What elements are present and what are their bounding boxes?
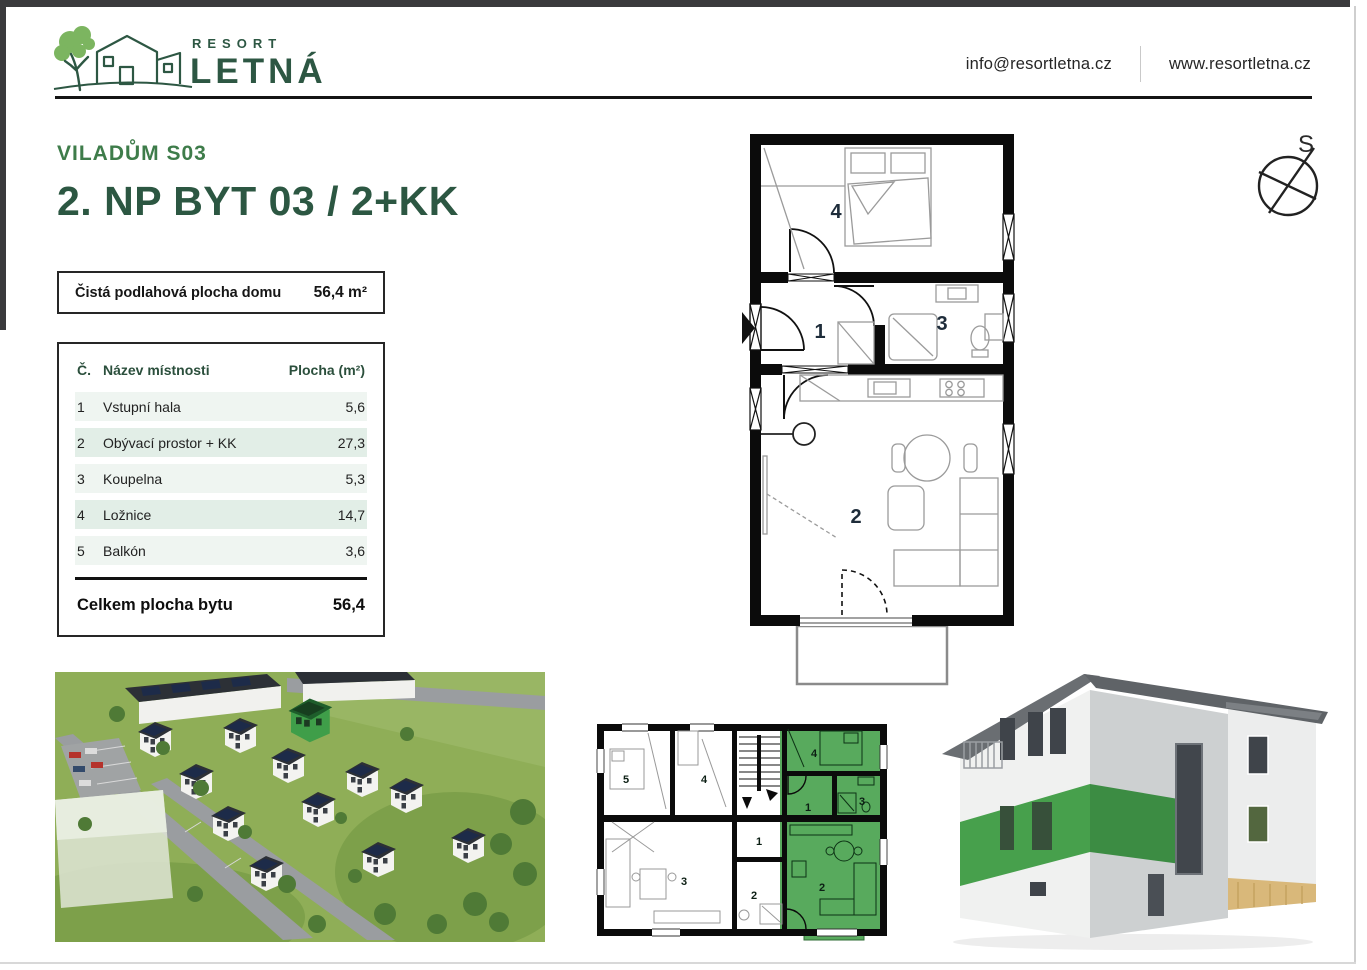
ceiling-lamp-icon [761,423,815,445]
col-area: Plocha (m²) [289,362,365,378]
logo-text-letna: LETNÁ [190,51,327,91]
col-number: Č. [77,362,103,378]
row-number: 3 [77,471,103,487]
logo-tree-icon [54,26,95,90]
ov-label-4L: 4 [701,774,708,786]
aerial-site-render [55,672,545,942]
ov-label-3G: 3 [859,796,865,808]
page-title: 2. NP BYT 03 / 2+KK [57,178,459,225]
row-number: 1 [77,399,103,415]
row-area: 5,3 [346,471,365,487]
table-total-row: Celkem plocha bytu 56,4 [75,577,367,617]
room-label-bathroom: 3 [936,313,947,335]
ov-label-5L: 5 [623,774,629,786]
page-right-edge [1354,6,1356,964]
ov-label-1G: 1 [805,802,811,814]
interior-doors [782,229,885,419]
window-top-edge [0,0,1350,7]
table-row: 3 Koupelna 5,3 [75,464,367,493]
row-name: Koupelna [103,471,346,487]
main-floorplan: 4 1 3 2 [742,126,1022,698]
contact-divider [1140,46,1141,82]
plan-walls [750,134,1014,626]
total-label: Celkem plocha bytu [77,596,233,615]
resort-letna-logo: RESORT LETNÁ [52,12,332,98]
sports-hall [55,790,173,908]
floorplan-overview: 5 4 3 1 2 4 1 3 2 [592,719,892,941]
rooms-table: Č. Název místnosti Plocha (m²) 1 Vstupní… [57,342,385,637]
total-value: 56,4 [333,596,365,615]
entrance-door [748,304,804,350]
row-area: 14,7 [338,507,365,523]
ov-label-2G: 2 [819,882,825,894]
rooms-table-header: Č. Název místnosti Plocha (m²) [75,358,367,392]
logo-text-resort: RESORT [192,36,282,51]
table-row: 5 Balkón 3,6 [75,536,367,565]
project-subtitle: VILADŮM S03 [57,142,459,166]
row-name: Balkón [103,543,346,559]
table-row: 1 Vstupní hala 5,6 [75,392,367,421]
row-number: 2 [77,435,103,451]
row-area: 5,6 [346,399,365,415]
page-bottom-edge [0,962,1356,964]
row-area: 3,6 [346,543,365,559]
contact-email-link[interactable]: info@resortletna.cz [966,55,1112,74]
row-number: 4 [77,507,103,523]
window-left-edge [0,0,6,330]
header-contact: info@resortletna.cz www.resortletna.cz [966,46,1311,82]
compass-north-label: S [1298,131,1314,158]
col-name: Název místnosti [103,362,289,378]
table-row: 2 Obývací prostor + KK 27,3 [75,428,367,457]
ov-label-2L: 2 [751,890,757,902]
row-area: 27,3 [338,435,365,451]
room-label-bedroom: 4 [830,201,842,223]
room-label-hall: 1 [814,321,825,343]
ov-label-3L: 3 [681,876,687,888]
ov-label-1L: 1 [756,836,762,848]
row-name: Obývací prostor + KK [103,435,338,451]
floor-area-summary: Čistá podlahová plocha domu 56,4 m² [57,271,385,314]
summary-label: Čistá podlahová plocha domu [75,285,281,301]
room-label-living: 2 [850,506,861,528]
balcony-outline [797,626,947,684]
header-rule [55,96,1312,99]
row-name: Vstupní hala [103,399,346,415]
balcony-door [800,570,912,626]
compass-icon: S [1248,126,1328,222]
building-render [938,656,1330,954]
ov-label-4G: 4 [811,748,818,760]
building-shadow [953,934,1313,950]
table-row: 4 Ložnice 14,7 [75,500,367,529]
row-number: 5 [77,543,103,559]
row-name: Ložnice [103,507,338,523]
website-link[interactable]: www.resortletna.cz [1169,55,1311,74]
summary-value: 56,4 m² [314,284,367,302]
title-block: VILADŮM S03 2. NP BYT 03 / 2+KK [57,142,459,225]
highlighted-apartment-area [780,724,887,936]
